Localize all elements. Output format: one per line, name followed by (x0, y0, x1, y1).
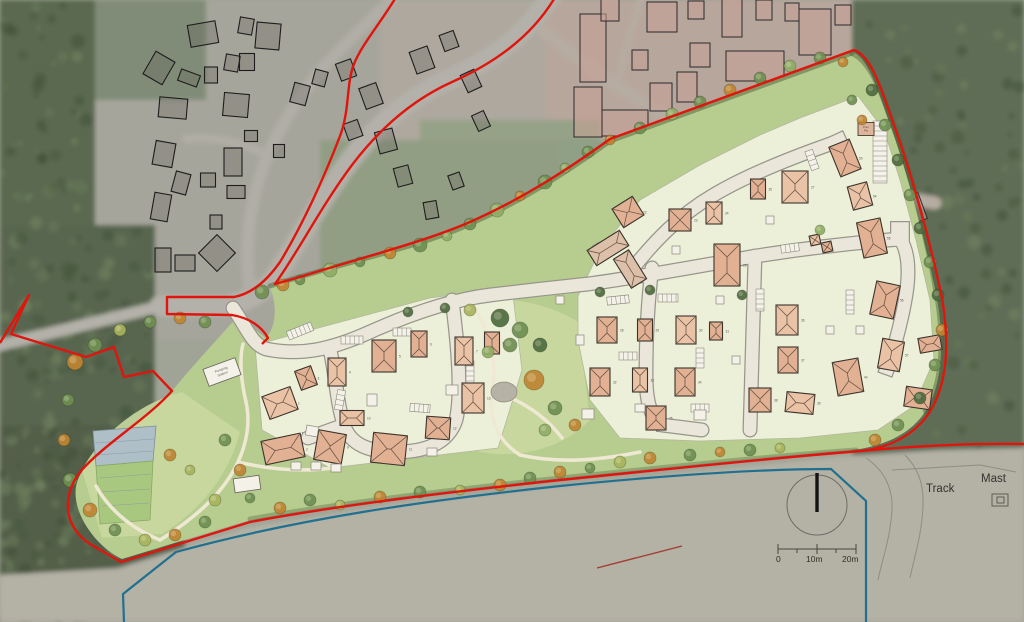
woodland-texture (1002, 165, 1007, 170)
woodland-texture (46, 540, 53, 547)
house (455, 337, 473, 365)
existing-building (756, 0, 772, 20)
woodland-texture (1001, 283, 1012, 294)
woodland-texture (47, 475, 54, 482)
woodland-texture (51, 499, 60, 508)
woodland-texture (22, 434, 26, 438)
tree-highlight (894, 421, 899, 426)
tree-highlight (65, 475, 71, 481)
garage (556, 296, 564, 304)
existing-building (227, 186, 245, 199)
tree-highlight (916, 394, 921, 399)
woodland-texture (1007, 132, 1012, 137)
house (372, 340, 396, 372)
woodland-texture (885, 31, 894, 40)
woodland-texture (73, 204, 81, 212)
woodland-texture (52, 61, 57, 66)
basin-slope (96, 461, 153, 524)
woodland-texture (6, 146, 16, 156)
woodland-texture (18, 529, 29, 540)
plot-number: 1 (298, 401, 300, 405)
woodland-texture (900, 56, 913, 69)
woodland-texture (968, 236, 981, 249)
tree-highlight (466, 306, 471, 311)
parking-bays (846, 290, 854, 314)
existing-building (785, 3, 799, 21)
garage (367, 394, 377, 406)
house (714, 244, 740, 286)
existing-building (650, 83, 672, 111)
woodland-texture (36, 26, 41, 31)
garage (856, 326, 864, 334)
scale-20m-label: 20m (842, 554, 859, 564)
house (646, 406, 666, 430)
tree-highlight (442, 305, 447, 310)
existing-building (245, 131, 258, 142)
tree-highlight (696, 98, 701, 103)
woodland-texture (993, 30, 1002, 39)
plot-number: 9 (347, 445, 349, 449)
tree-highlight (647, 287, 652, 292)
woodland-texture (15, 233, 28, 246)
parking-strip (410, 403, 431, 412)
woodland-texture (31, 2, 41, 12)
woodland-texture (987, 392, 999, 404)
house (371, 432, 408, 465)
woodland-texture (37, 558, 45, 566)
tree-highlight (541, 426, 546, 431)
garage (716, 296, 724, 304)
plot-number: 54 (873, 194, 877, 198)
house (821, 241, 833, 253)
garage (582, 409, 594, 419)
play-area (491, 382, 517, 402)
woodland-texture (93, 356, 106, 369)
woodland-texture (958, 121, 967, 130)
parking-strip (619, 352, 637, 360)
tree-highlight (276, 504, 281, 509)
tree-highlight (859, 117, 864, 122)
tree-highlight (906, 191, 911, 196)
tree-highlight (337, 502, 342, 507)
track-label: Track (926, 483, 955, 495)
house (918, 335, 942, 354)
site-plan-map: 1234567891011121322232425262728293031323… (0, 0, 1024, 622)
woodland-texture (924, 113, 932, 121)
woodland-texture (913, 59, 918, 64)
tree-highlight (668, 110, 673, 115)
woodland-texture (0, 539, 8, 547)
woodland-texture (940, 196, 954, 210)
woodland-texture (57, 517, 66, 526)
existing-building (688, 1, 704, 19)
woodland-texture (31, 315, 38, 322)
house (425, 416, 450, 440)
woodland-texture (48, 221, 59, 232)
parking-bays (658, 294, 678, 302)
tree-highlight (69, 356, 76, 363)
tree-highlight (571, 421, 576, 426)
woodland-texture (925, 186, 932, 193)
woodland-texture (46, 264, 55, 273)
woodland-texture (34, 93, 39, 98)
woodland-texture (11, 143, 16, 148)
woodland-texture (104, 258, 115, 269)
tree-highlight (306, 496, 311, 501)
tree-highlight (616, 458, 621, 463)
woodland-texture (17, 356, 27, 366)
existing-building (690, 43, 710, 67)
tree-highlight (416, 488, 421, 493)
tree-highlight (849, 97, 854, 102)
existing-building (224, 54, 241, 72)
plot-number: 26 (769, 187, 773, 191)
existing-building (274, 145, 285, 158)
woodland-texture (13, 192, 22, 201)
house (340, 411, 364, 426)
scale-0-label: 0 (776, 554, 781, 564)
tree-highlight (376, 493, 381, 498)
tree-highlight (85, 505, 91, 511)
tree-highlight (187, 467, 192, 472)
tree-highlight (871, 436, 876, 441)
tree-highlight (726, 86, 731, 91)
woodland-texture (960, 81, 968, 89)
tree-highlight (816, 54, 821, 59)
woodland-texture (951, 130, 965, 144)
garage (331, 464, 341, 472)
woodland-texture (957, 24, 966, 33)
woodland-texture (32, 468, 43, 479)
woodland-texture (978, 312, 985, 319)
parking-bays (341, 336, 363, 344)
woodland-texture (80, 114, 93, 127)
woodland-texture (120, 299, 130, 309)
existing-building (799, 9, 831, 55)
tree-highlight (894, 156, 899, 161)
house (710, 322, 723, 340)
woodland-texture (81, 275, 89, 283)
tree-highlight (111, 526, 116, 531)
plot-number: 33 (651, 378, 655, 382)
woodland-texture (9, 278, 14, 283)
plot-number: 37 (801, 358, 805, 362)
tree-highlight (646, 454, 651, 459)
woodland-texture (71, 417, 80, 426)
woodland-texture (1008, 41, 1018, 51)
woodland-texture (56, 177, 66, 187)
existing-building (205, 67, 218, 83)
house (776, 305, 798, 335)
woodland-texture (50, 149, 61, 160)
woodland-texture (950, 167, 958, 175)
site-plan-canvas: 1234567891011121322232425262728293031323… (0, 0, 1024, 622)
plot-number: 25 (743, 263, 747, 267)
tree-highlight (514, 324, 521, 331)
plot-number: 29 (656, 328, 660, 332)
woodland-texture (934, 142, 945, 153)
tree-highlight (505, 340, 511, 346)
existing-building (601, 0, 619, 21)
woodland-texture (981, 244, 993, 256)
house (590, 368, 610, 396)
house (411, 331, 427, 357)
woodland-texture (71, 138, 79, 146)
garage (305, 425, 319, 437)
house (749, 388, 771, 412)
woodland-texture (133, 380, 145, 392)
tree-highlight (881, 121, 886, 126)
garage (826, 326, 834, 334)
woodland-texture (43, 416, 56, 429)
woodland-texture (58, 557, 66, 565)
woodland-texture (77, 235, 83, 241)
woodland-texture (59, 1, 67, 9)
woodland-texture (904, 48, 911, 55)
plot-number: 39 (817, 401, 821, 405)
woodland-texture (970, 223, 981, 234)
utility-building (233, 475, 261, 492)
woodland-texture (82, 434, 94, 446)
tree-highlight (934, 291, 939, 296)
woodland-texture (54, 486, 59, 491)
woodland-texture (47, 15, 55, 23)
woodland-texture (9, 547, 15, 553)
tree-highlight (201, 518, 206, 523)
woodland-texture (1017, 162, 1024, 169)
plot-number: 22 (643, 210, 647, 214)
woodland-texture (939, 223, 947, 231)
tree-highlight (257, 287, 263, 293)
tree-highlight (60, 436, 65, 441)
woodland-texture (42, 184, 56, 198)
tree-highlight (247, 495, 252, 500)
aerial-patch (86, 0, 206, 100)
woodland-texture (0, 21, 13, 34)
tree-highlight (201, 318, 206, 323)
tree-highlight (405, 309, 410, 314)
woodland-texture (1014, 332, 1020, 338)
tree-highlight (817, 227, 822, 232)
plot-number: 57 (905, 353, 909, 357)
woodland-texture (72, 51, 83, 62)
woodland-texture (84, 244, 92, 252)
woodland-texture (12, 519, 24, 531)
woodland-texture (61, 188, 66, 193)
woodland-texture (7, 258, 16, 267)
woodland-texture (953, 340, 961, 348)
garage (694, 410, 706, 420)
woodland-texture (46, 369, 53, 376)
woodland-texture (86, 365, 94, 373)
tree-highlight (686, 451, 691, 456)
woodland-texture (962, 211, 973, 222)
woodland-texture (143, 332, 148, 337)
tree-highlight (526, 474, 531, 479)
house (785, 392, 815, 415)
woodland-texture (33, 389, 43, 399)
woodland-texture (18, 141, 23, 146)
woodland-texture (30, 12, 38, 20)
existing-building (423, 201, 439, 220)
woodland-texture (0, 312, 11, 323)
house (638, 319, 653, 341)
house (328, 358, 346, 386)
woodland-texture (74, 96, 84, 106)
house (675, 368, 695, 396)
existing-building (574, 87, 602, 137)
plot-number: 53 (859, 156, 863, 160)
woodland-texture (35, 480, 46, 491)
existing-building (201, 173, 216, 187)
existing-building (255, 22, 281, 50)
plot-number: 36 (801, 318, 805, 322)
tree-highlight (717, 449, 722, 454)
parking-strip (846, 290, 854, 314)
plot-number: 2 (306, 447, 308, 451)
existing-building (224, 148, 242, 176)
woodland-texture (57, 51, 68, 62)
woodland-texture (15, 463, 20, 468)
plot-number: 35 (669, 416, 673, 420)
existing-building (155, 248, 171, 272)
tree-highlight (550, 403, 556, 409)
woodland-texture (102, 229, 113, 240)
tree-highlight (146, 318, 151, 323)
parking-strip (341, 336, 363, 344)
turning-head-surface (891, 222, 909, 246)
woodland-texture (1009, 269, 1018, 278)
plot-number: 34 (698, 380, 702, 384)
woodland-texture (1008, 198, 1019, 209)
plot-number: 12 (453, 426, 457, 430)
scale-10m-label: 10m (806, 554, 823, 564)
tree-highlight (211, 496, 216, 501)
woodland-texture (40, 36, 44, 40)
woodland-texture (957, 286, 970, 299)
woodland-texture (98, 267, 111, 280)
existing-building (210, 215, 222, 229)
woodland-texture (71, 109, 77, 115)
plot-number: 13 (487, 396, 491, 400)
plot-number: 56 (900, 298, 904, 302)
plot-number: 3 (318, 376, 320, 380)
garage (311, 462, 321, 470)
plot-number: 31 (726, 329, 730, 333)
woodland-texture (1008, 149, 1019, 160)
house (597, 317, 617, 343)
parking-bays (410, 403, 431, 412)
woodland-texture (956, 110, 965, 119)
woodland-texture (42, 427, 50, 435)
woodland-texture (994, 183, 1002, 191)
garage (732, 356, 740, 364)
woodland-texture (115, 234, 127, 246)
woodland-texture (36, 153, 47, 164)
tree-highlight (64, 396, 69, 401)
existing-building (158, 97, 188, 119)
woodland-texture (865, 21, 873, 29)
woodland-texture (45, 378, 50, 383)
tree-highlight (840, 59, 845, 64)
house (878, 338, 905, 371)
woodland-texture (69, 239, 75, 245)
parking-strip (393, 328, 411, 336)
garage (446, 385, 458, 395)
tree-highlight (90, 340, 96, 346)
house (314, 430, 347, 464)
woodland-texture (1004, 400, 1015, 411)
tree-highlight (141, 536, 146, 541)
existing-building (240, 54, 255, 71)
woodland-texture (1002, 78, 1014, 90)
woodland-texture (936, 64, 947, 75)
woodland-texture (953, 193, 964, 204)
garage (576, 335, 584, 345)
woodland-texture (1, 556, 9, 564)
tree-highlight (221, 436, 226, 441)
tree-highlight (926, 258, 931, 263)
existing-building (238, 17, 255, 35)
woodland-texture (145, 267, 152, 274)
plot-number: 28 (620, 328, 624, 332)
plot-number: 30 (699, 328, 703, 332)
woodland-texture (928, 106, 937, 115)
house (676, 316, 696, 344)
tree-highlight (938, 326, 943, 331)
woodland-texture (61, 261, 75, 275)
woodland-texture (24, 195, 31, 202)
woodland-texture (6, 520, 13, 527)
woodland-texture (1011, 5, 1023, 17)
parking-strip (658, 294, 678, 302)
house (809, 234, 821, 246)
woodland-texture (913, 134, 922, 143)
plot-number: 38 (774, 398, 778, 402)
woodland-texture (886, 57, 891, 62)
woodland-texture (67, 292, 77, 302)
tree-highlight (556, 468, 561, 473)
woodland-texture (980, 268, 991, 279)
plot-number: 11 (409, 447, 413, 451)
woodland-texture (129, 358, 136, 365)
parking-strip (756, 289, 764, 311)
svg-text:Pts: Pts (864, 129, 869, 133)
mast-label: Mast (981, 473, 1007, 485)
tree-highlight (868, 86, 873, 91)
plot-number: 5 (399, 354, 401, 358)
plot-number: 4 (349, 370, 351, 374)
woodland-texture (996, 210, 1008, 222)
tree-highlight (116, 326, 121, 331)
tree-highlight (756, 74, 761, 79)
woodland-texture (18, 50, 28, 60)
woodland-texture (30, 217, 43, 230)
plot-number: 24 (725, 211, 729, 215)
plot-number: 10 (367, 416, 371, 420)
existing-building (677, 72, 697, 102)
woodland-texture (4, 476, 9, 481)
woodland-texture (71, 34, 85, 48)
woodland-texture (35, 302, 41, 308)
tree-highlight (739, 292, 744, 297)
woodland-texture (998, 268, 1005, 275)
woodland-texture (897, 118, 904, 125)
woodland-texture (973, 193, 981, 201)
tree-highlight (484, 348, 489, 353)
plot-number: 27 (811, 185, 815, 189)
garage (766, 216, 774, 224)
